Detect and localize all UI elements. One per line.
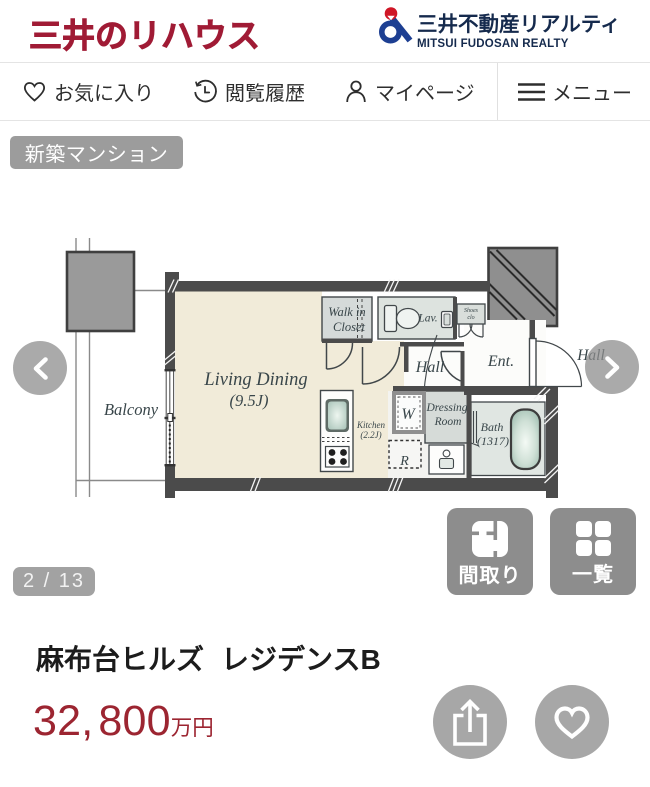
svg-text:(2.2J): (2.2J) (360, 430, 381, 440)
svg-text:Shoes: Shoes (464, 308, 479, 314)
svg-text:Closet: Closet (333, 320, 365, 334)
svg-text:Living Dining: Living Dining (203, 370, 307, 390)
svg-text:Balcony: Balcony (104, 400, 159, 419)
svg-text:Room: Room (434, 416, 462, 428)
svg-text:Dressing: Dressing (425, 402, 467, 414)
svg-text:Walk in: Walk in (328, 305, 365, 319)
svg-text:clo: clo (467, 315, 474, 321)
svg-text:Bath: Bath (481, 420, 504, 434)
svg-text:(1317): (1317) (477, 434, 509, 448)
svg-text:Hall: Hall (415, 359, 445, 376)
svg-text:Kitchen: Kitchen (356, 420, 385, 430)
svg-text:W: W (401, 406, 416, 423)
svg-text:Lav.: Lav. (417, 313, 437, 325)
svg-text:Ent.: Ent. (487, 353, 514, 370)
svg-text:(9.5J): (9.5J) (230, 391, 269, 410)
svg-text:R: R (399, 454, 409, 469)
